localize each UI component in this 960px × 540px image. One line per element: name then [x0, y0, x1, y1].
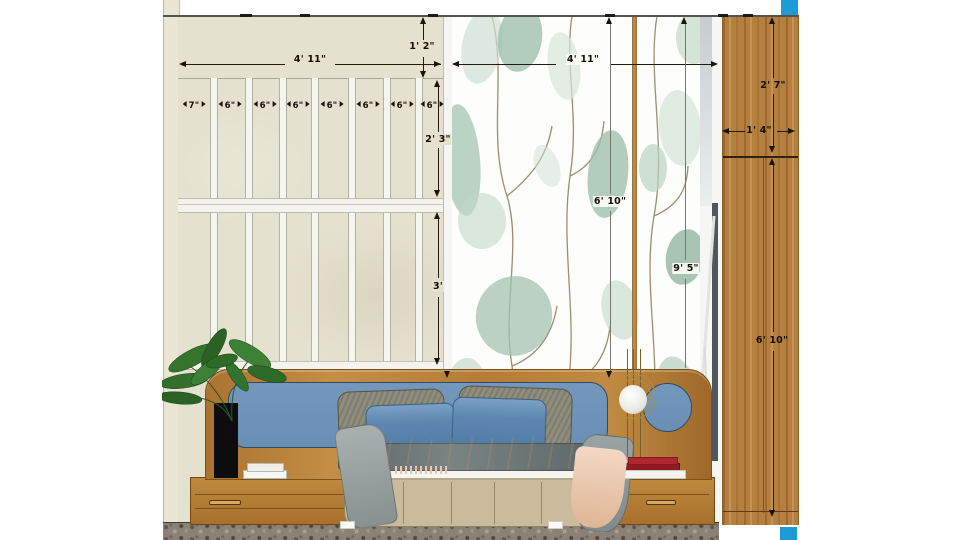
dimension-label-wallpaper-width[interactable]: 4' 11"	[566, 54, 600, 65]
dimension-arrow	[434, 190, 440, 197]
dimension-line	[773, 24, 774, 78]
dimension-arrow	[179, 61, 186, 67]
ceiling-tick-mark	[300, 14, 310, 17]
dimension-line	[335, 64, 441, 65]
dimension-label-top-band[interactable]: 1' 2"	[408, 41, 435, 52]
bed-foot	[340, 521, 355, 529]
wall-slat	[311, 78, 319, 368]
elevation-drawing-canvas: 4' 11" 4' 11" 1' 2" 2' 3" 3' 7" 6" 6" 6"…	[0, 0, 960, 540]
dimension-line	[438, 219, 439, 278]
section-marker-bottom[interactable]	[780, 527, 797, 540]
wardrobe-base-line	[723, 511, 798, 512]
dimension-arrow	[434, 80, 440, 87]
dimension-label-slat-segment[interactable]: 6"	[391, 101, 414, 111]
dimension-arrow	[769, 17, 775, 24]
dimension-label-slat-segment[interactable]: 6"	[421, 101, 444, 111]
dimension-label-slat-segment[interactable]: 6"	[321, 101, 344, 111]
ceiling-tick-mark	[743, 14, 753, 17]
dimension-label-slat-segment[interactable]: 7"	[183, 101, 206, 111]
dimension-arrow	[606, 371, 612, 378]
dimension-label-slat-upper[interactable]: 2' 3"	[424, 134, 451, 145]
plant-fronds	[162, 326, 302, 426]
pendant-lamp-globe[interactable]	[619, 385, 647, 414]
dimension-arrow	[444, 371, 450, 378]
dimension-line	[773, 165, 774, 332]
dimension-arrow	[434, 61, 441, 67]
dimension-label-wardrobe-width[interactable]: 1' 4"	[746, 125, 771, 136]
ceiling-tick-mark	[718, 14, 728, 17]
ceiling-tick-mark	[240, 14, 252, 17]
dimension-label-slat-segment[interactable]: 6"	[219, 101, 242, 111]
tuft-seam	[494, 482, 495, 524]
dimension-arrow	[711, 61, 718, 67]
drawer-handle[interactable]	[646, 500, 676, 505]
dimension-line	[454, 64, 556, 65]
dimension-line	[610, 211, 611, 371]
wall-slat	[348, 78, 356, 368]
bed-foot	[548, 521, 563, 529]
dimension-line	[610, 24, 611, 194]
wardrobe-divider-line	[723, 156, 798, 158]
tuft-seam	[451, 482, 452, 524]
dimension-label-wardrobe-lower[interactable]: 6' 10"	[756, 335, 788, 346]
wardrobe-panel[interactable]	[722, 15, 799, 525]
dimension-arrow	[769, 158, 775, 165]
dimension-arrow	[769, 146, 775, 153]
dimension-arrow	[722, 128, 729, 134]
dimension-line	[438, 148, 439, 190]
dimension-arrow	[788, 128, 795, 134]
dimension-line	[773, 94, 774, 146]
dimension-line	[438, 297, 439, 358]
drawer-groove	[195, 508, 345, 509]
wall-slat	[279, 78, 287, 368]
dimension-arrow	[420, 17, 426, 24]
section-marker-top[interactable]	[781, 0, 798, 15]
dimension-line	[610, 64, 716, 65]
wall-slat	[383, 78, 391, 368]
dimension-label-slat-segment[interactable]: 6"	[287, 101, 310, 111]
dimension-label-left-wall-width[interactable]: 4' 11"	[293, 54, 327, 65]
white-books[interactable]	[247, 463, 284, 472]
wall-slat	[210, 78, 218, 368]
dimension-line	[181, 64, 285, 65]
red-books[interactable]	[628, 457, 678, 465]
wall-slat	[245, 78, 253, 368]
dimension-label-slat-lower[interactable]: 3'	[432, 281, 444, 292]
drawer-handle[interactable]	[209, 500, 241, 505]
groove-mid-line	[178, 204, 443, 205]
dimension-arrow	[434, 212, 440, 219]
dimension-line	[685, 24, 686, 260]
tuft-seam	[403, 482, 404, 524]
dimension-label-full-height[interactable]: 9' 5"	[672, 263, 699, 274]
dimension-label-slat-segment[interactable]: 6"	[357, 101, 380, 111]
wall-slat	[415, 78, 423, 368]
dimension-line	[685, 279, 686, 368]
dimension-arrow	[769, 510, 775, 517]
dimension-label-wallpaper-height[interactable]: 6' 10"	[593, 196, 627, 207]
curtain-shading	[700, 16, 712, 206]
slat-horizontal-groove	[178, 198, 443, 213]
dimension-line	[773, 351, 774, 510]
dimension-arrow	[452, 61, 459, 67]
ceiling-line	[163, 15, 797, 17]
ceiling-tick-mark	[428, 14, 438, 17]
drawer-groove	[195, 494, 345, 495]
dimension-arrow	[420, 71, 426, 78]
dimension-arrow	[606, 17, 612, 24]
dimension-label-wardrobe-upper[interactable]: 2' 7"	[760, 80, 785, 91]
dimension-label-slat-segment[interactable]: 6"	[254, 101, 277, 111]
book-shelf[interactable]	[620, 470, 686, 479]
blanket-fringe	[395, 466, 447, 474]
dimension-arrow	[681, 17, 687, 24]
dimension-arrow	[434, 358, 440, 365]
tuft-seam	[541, 482, 542, 524]
potted-plant[interactable]	[162, 326, 302, 430]
